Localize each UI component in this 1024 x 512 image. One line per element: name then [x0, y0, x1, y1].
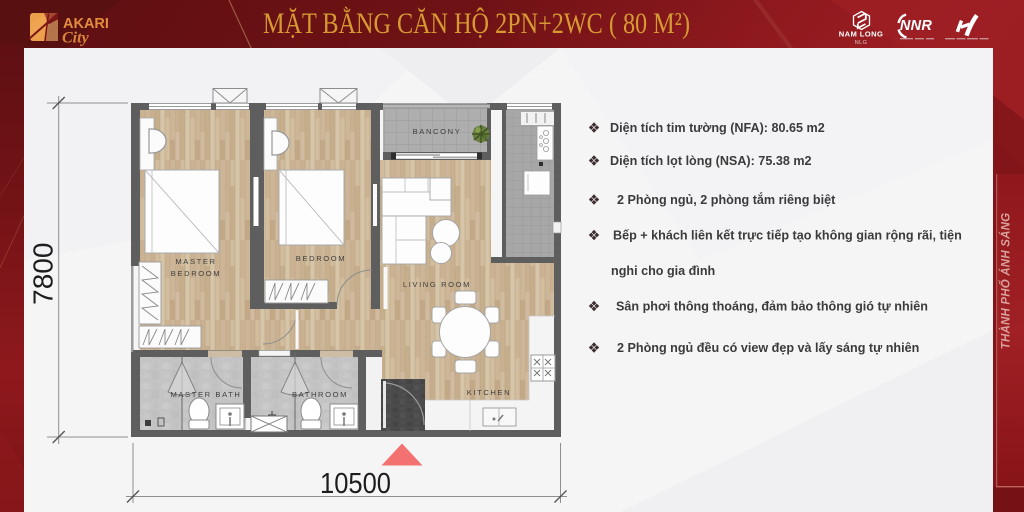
svg-text:Diện tích lọt lòng (NSA): 75.3: Diện tích lọt lòng (NSA): 75.38 m2 [610, 154, 812, 168]
svg-text:Sân phơi thông thoáng, đảm bảo: Sân phơi thông thoáng, đảm bảo thông gió… [616, 300, 928, 314]
svg-text:City: City [62, 30, 90, 47]
svg-text:MẶT BẰNG CĂN HỘ 2PN+2WC ( 80 M: MẶT BẰNG CĂN HỘ 2PN+2WC ( 80 M²) [263, 6, 690, 40]
svg-text:BEDROOM: BEDROOM [171, 269, 221, 278]
svg-text:MASTER BATH: MASTER BATH [170, 390, 241, 399]
svg-text:7800: 7800 [28, 243, 59, 305]
svg-text:Diện tích tim tường (NFA): 80.: Diện tích tim tường (NFA): 80.65 m2 [610, 121, 825, 135]
svg-text:NNR: NNR [900, 18, 933, 34]
svg-text:MASTER: MASTER [175, 257, 216, 266]
svg-text:10500: 10500 [320, 468, 391, 500]
svg-text:NLG: NLG [855, 40, 868, 46]
svg-text:nghi cho gia đình: nghi cho gia đình [611, 264, 715, 278]
svg-text:THÀNH PHỐ ÁNH SÁNG: THÀNH PHỐ ÁNH SÁNG [1000, 213, 1013, 350]
svg-text:BEDROOM: BEDROOM [296, 254, 346, 263]
svg-text:Bếp + khách liên kết trực tiếp: Bếp + khách liên kết trực tiếp tạo không… [613, 229, 962, 243]
svg-text:BATHROOM: BATHROOM [292, 390, 348, 399]
svg-text:2 Phòng ngủ đều có view đẹp và: 2 Phòng ngủ đều có view đẹp và lấy sáng … [617, 341, 919, 355]
svg-text:KITCHEN: KITCHEN [467, 388, 512, 397]
svg-text:NAM LONG: NAM LONG [839, 30, 884, 39]
svg-text:LIVING ROOM: LIVING ROOM [403, 280, 471, 289]
svg-text:BANCONY: BANCONY [413, 127, 462, 136]
svg-text:2 Phòng ngủ, 2 phòng tắm riêng: 2 Phòng ngủ, 2 phòng tắm riêng biệt [617, 192, 836, 207]
